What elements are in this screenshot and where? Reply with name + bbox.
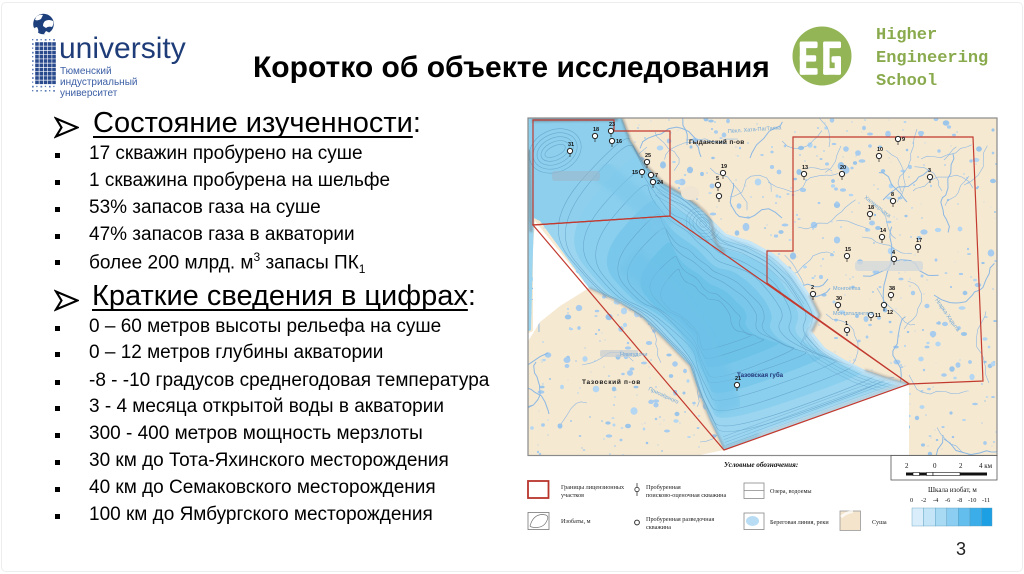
svg-text:Тазовский п-ов: Тазовский п-ов xyxy=(582,378,641,386)
svg-text:14: 14 xyxy=(880,228,887,234)
svg-text:2: 2 xyxy=(905,462,909,470)
svg-text:Береговая линия, реки: Береговая линия, реки xyxy=(770,519,829,526)
svg-text:-11: -11 xyxy=(982,497,990,504)
svg-text:Гыданский п-ов: Гыданский п-ов xyxy=(689,138,745,146)
svg-text:9: 9 xyxy=(902,137,905,143)
svg-text:-8: -8 xyxy=(957,497,962,504)
svg-text:30: 30 xyxy=(836,296,842,302)
svg-text:16: 16 xyxy=(616,139,622,145)
svg-text:0: 0 xyxy=(933,462,937,470)
svg-text:поисково-оценочная скважина: поисково-оценочная скважина xyxy=(646,492,726,499)
svg-text:25: 25 xyxy=(645,153,651,159)
svg-text:8: 8 xyxy=(891,192,894,198)
svg-text:-2: -2 xyxy=(921,497,926,504)
svg-text:3: 3 xyxy=(928,168,931,174)
svg-text:17: 17 xyxy=(916,238,922,244)
svg-text:13: 13 xyxy=(802,165,808,171)
svg-text:скважина: скважина xyxy=(646,524,671,531)
svg-text:Нямгудочи: Нямгудочи xyxy=(620,352,647,358)
svg-text:участков: участков xyxy=(561,492,584,499)
svg-text:15: 15 xyxy=(845,247,851,253)
svg-text:-6: -6 xyxy=(945,497,950,504)
svg-text:Монгоёеха: Монгоёеха xyxy=(833,286,861,292)
svg-text:7: 7 xyxy=(655,173,658,179)
svg-text:-10: -10 xyxy=(968,497,976,504)
svg-text:Шкала изобат, м: Шкала изобат, м xyxy=(928,486,977,494)
svg-text:Тазовская губа: Тазовская губа xyxy=(737,372,784,379)
svg-text:31: 31 xyxy=(568,142,574,148)
svg-text:-4: -4 xyxy=(933,497,939,504)
svg-text:Пробуренная: Пробуренная xyxy=(646,484,681,491)
svg-text:12: 12 xyxy=(887,310,893,316)
svg-text:24: 24 xyxy=(657,180,664,186)
svg-text:2: 2 xyxy=(959,462,963,470)
svg-text:Озера, водоемы: Озера, водоемы xyxy=(770,488,812,495)
svg-text:19: 19 xyxy=(721,164,727,170)
svg-text:23: 23 xyxy=(609,122,615,128)
svg-text:Суша: Суша xyxy=(872,519,887,526)
svg-text:20: 20 xyxy=(840,165,846,171)
svg-text:38: 38 xyxy=(889,286,895,292)
svg-text:11: 11 xyxy=(875,313,881,319)
svg-text:Изобаты, м: Изобаты, м xyxy=(561,518,591,525)
svg-text:Пробуренная разведочная: Пробуренная разведочная xyxy=(646,516,714,523)
svg-text:10: 10 xyxy=(877,147,883,153)
svg-text:15: 15 xyxy=(632,170,638,176)
svg-text:5: 5 xyxy=(716,176,719,182)
svg-text:2: 2 xyxy=(811,285,814,291)
svg-text:Монгаталянгяха: Монгаталянгяха xyxy=(833,311,875,317)
svg-text:Границы лицензионных: Границы лицензионных xyxy=(561,484,625,491)
svg-text:1: 1 xyxy=(845,321,848,327)
svg-text:0: 0 xyxy=(910,497,913,504)
svg-text:4 км: 4 км xyxy=(979,462,993,470)
svg-text:Условные обозначения:: Условные обозначения: xyxy=(724,461,798,469)
svg-text:18: 18 xyxy=(593,127,599,133)
